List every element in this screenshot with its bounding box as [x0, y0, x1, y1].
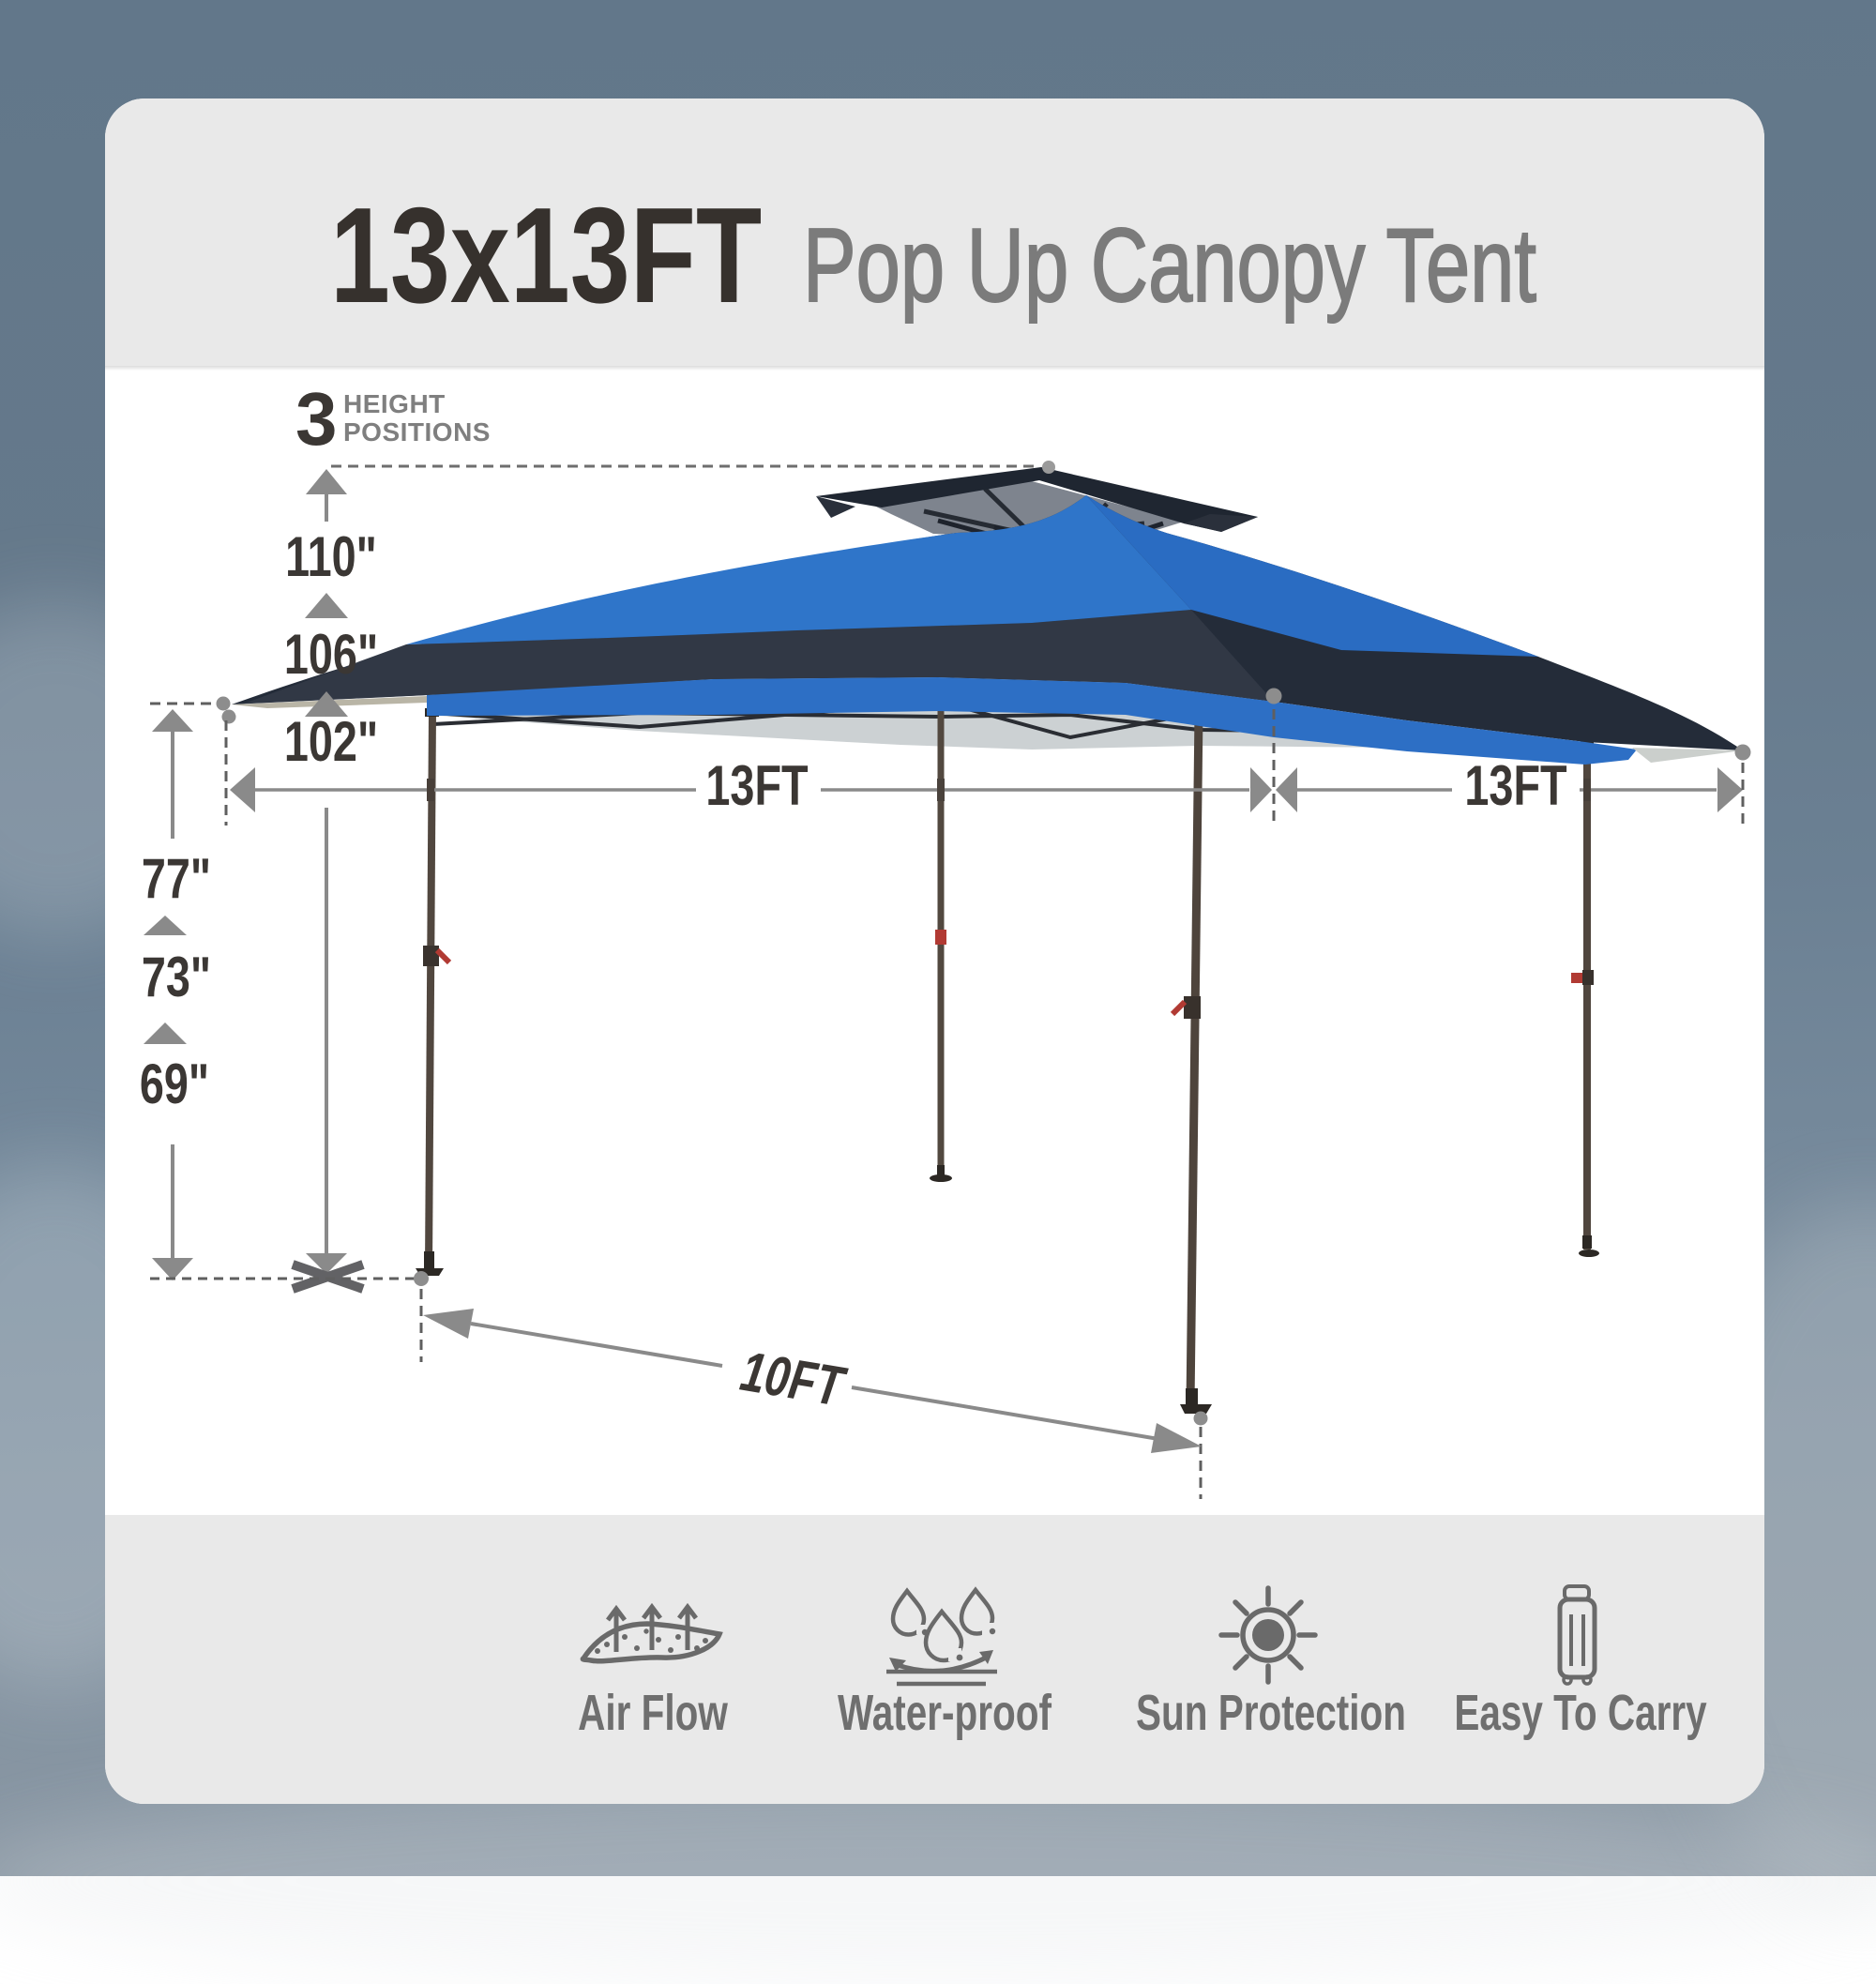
svg-text:3: 3 — [295, 377, 338, 461]
svg-text:110": 110" — [285, 525, 377, 588]
svg-text:13x13FT: 13x13FT — [330, 179, 762, 331]
svg-text:73": 73" — [142, 946, 211, 1008]
svg-text:10FT: 10FT — [736, 1340, 851, 1419]
svg-text:Air Flow: Air Flow — [578, 1685, 728, 1741]
svg-text:13FT: 13FT — [705, 754, 808, 817]
svg-text:Water-proof: Water-proof — [838, 1685, 1051, 1741]
svg-text:13FT: 13FT — [1464, 754, 1566, 817]
svg-text:Pop Up Canopy Tent: Pop Up Canopy Tent — [803, 207, 1536, 324]
svg-text:77": 77" — [142, 847, 211, 910]
svg-text:HEIGHT: HEIGHT — [343, 389, 446, 418]
svg-text:POSITIONS: POSITIONS — [343, 417, 491, 447]
svg-text:69": 69" — [140, 1053, 209, 1115]
svg-text:106": 106" — [284, 623, 378, 686]
svg-text:102": 102" — [284, 710, 378, 773]
svg-text:Sun Protection: Sun Protection — [1136, 1685, 1406, 1741]
svg-text:Easy To Carry: Easy To Carry — [1454, 1685, 1707, 1741]
